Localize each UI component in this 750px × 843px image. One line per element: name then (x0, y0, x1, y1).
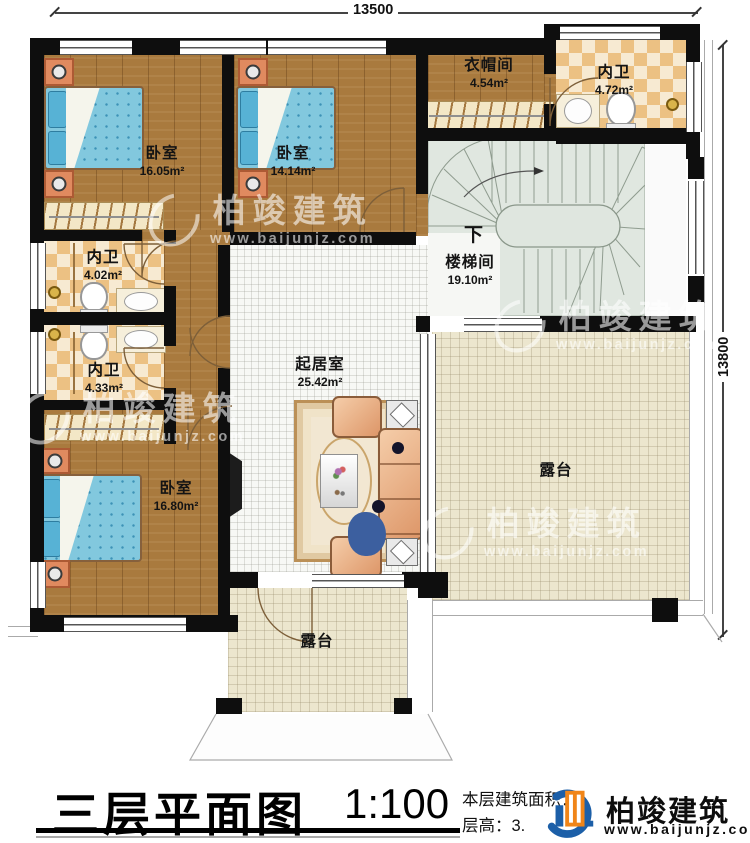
shower-partition (73, 243, 75, 307)
towel-ring (666, 98, 679, 111)
nightstand (44, 58, 74, 86)
title-underline (36, 828, 460, 833)
wall-segment (540, 316, 696, 332)
title-underline (36, 836, 460, 838)
stair-direction-label: 下 (464, 220, 483, 247)
towel-ring (48, 328, 61, 341)
wall-segment (164, 388, 176, 444)
floor-plan-page: 卧室 16.05m² 卧室 14.14m² 衣帽间 4.54m² 内卫 4.72… (0, 0, 750, 843)
room-name: 楼梯间 (445, 254, 495, 273)
room-name: 露台 (300, 633, 333, 652)
company-logo-url: www.baijunjz.com (604, 821, 750, 837)
window (64, 617, 186, 632)
person-figure (348, 512, 386, 556)
sink-bath-mid1 (116, 288, 166, 315)
nightstand (44, 170, 74, 198)
bed-sheet (66, 88, 122, 168)
wall-segment (416, 316, 430, 332)
top-dimension-label: 13500 (348, 2, 398, 18)
wall-segment (544, 24, 556, 74)
wall-segment (218, 368, 230, 444)
wall-segment (30, 312, 176, 325)
bed-bedroom1 (44, 86, 144, 170)
room-label-cloakroom: 衣帽间 4.54m² (464, 57, 514, 90)
right-dimension-label: 13800 (716, 332, 732, 382)
room-label-stairwell: 楼梯间 19.10m² (445, 254, 495, 287)
bay-area (645, 145, 686, 316)
room-area: 4.02m² (84, 268, 122, 282)
room-label-bath-mid2: 内卫 4.33m² (85, 362, 123, 395)
person-head (392, 442, 404, 454)
coffee-table (320, 454, 358, 508)
wall-segment (416, 141, 428, 194)
exterior-sill (704, 40, 713, 614)
room-area: 16.80m² (154, 499, 199, 513)
towel-ring (48, 286, 61, 299)
wall-segment (688, 276, 704, 302)
wall-segment (228, 572, 258, 588)
room-label-living: 起居室 25.42m² (295, 356, 345, 389)
window (268, 40, 386, 55)
scale-label: 1:100 (344, 780, 449, 828)
side-table (386, 538, 418, 566)
room-area: 16.05m² (140, 164, 185, 178)
wall-segment (688, 157, 704, 179)
nightstand (238, 170, 268, 198)
wall-segment (164, 230, 176, 244)
closet-bedroom3 (44, 414, 164, 441)
toilet-bath-mid2 (80, 330, 108, 360)
wall-segment (30, 400, 176, 410)
window (30, 243, 46, 309)
wardrobe-cloakroom (424, 101, 554, 129)
window (688, 181, 704, 274)
window (60, 40, 132, 55)
room-name: 卧室 (154, 480, 199, 499)
sink-bath-top (556, 94, 600, 128)
terrace-parapet (407, 600, 433, 712)
bed-pillow (240, 131, 259, 165)
tv (228, 452, 242, 518)
stairwell-drawing (428, 137, 645, 316)
room-name: 卧室 (271, 145, 316, 164)
room-label-terrace-right: 露台 (539, 462, 572, 481)
room-name: 内卫 (595, 64, 633, 83)
bed-pillow (240, 91, 259, 128)
bed-pillow (42, 479, 61, 518)
room-label-bath-mid1: 内卫 4.02m² (84, 249, 122, 282)
bed-pillow (42, 521, 61, 557)
wall-segment (230, 232, 416, 245)
wall-segment (222, 38, 234, 232)
window (560, 26, 660, 40)
room-name: 内卫 (85, 362, 123, 381)
bed-pillow (48, 131, 67, 165)
toilet-bath-top (606, 92, 636, 126)
sink-bath-mid2 (116, 326, 166, 353)
bed-sheet (60, 476, 116, 560)
room-name: 衣帽间 (464, 57, 514, 76)
room-label-terrace-bottom: 露台 (300, 633, 333, 652)
room-label-bedroom3: 卧室 16.80m² (154, 480, 199, 513)
room-name: 卧室 (140, 145, 185, 164)
room-area: 4.33m² (85, 381, 123, 395)
window (30, 332, 46, 394)
room-area: 25.42m² (295, 375, 345, 389)
wall-segment (418, 572, 448, 598)
floor-height-info: 层高：3. (462, 812, 525, 836)
window (30, 562, 46, 608)
nightstand (40, 448, 70, 474)
room-label-bath-top: 内卫 4.72m² (595, 64, 633, 97)
nightstand (238, 58, 268, 86)
door-gap-floor (416, 191, 428, 236)
wall-segment (556, 128, 700, 144)
floor-area-info: 本层建筑面积： (462, 786, 578, 810)
wall-segment (218, 444, 230, 632)
room-area: 19.10m² (445, 273, 495, 287)
wall-segment (218, 245, 230, 317)
toilet-bath-mid1 (80, 282, 108, 312)
room-label-bedroom1: 卧室 16.05m² (140, 145, 185, 178)
room-name: 起居室 (295, 356, 345, 375)
bed-pillow (48, 91, 67, 128)
wall-segment (416, 128, 556, 141)
wall-segment (30, 230, 142, 241)
wall-segment (652, 598, 678, 622)
person-head (372, 500, 385, 513)
room-area: 4.54m² (464, 76, 514, 90)
room-name: 露台 (539, 462, 572, 481)
side-table (386, 400, 418, 430)
window (464, 318, 542, 332)
bed-bedroom3 (38, 474, 142, 562)
armchair-top (332, 396, 382, 438)
terrace-parapet (689, 332, 705, 614)
wall-segment (416, 38, 428, 141)
room-label-bedroom2: 卧室 14.14m² (271, 145, 316, 178)
room-area: 4.72m² (595, 83, 633, 97)
wall-segment (394, 698, 412, 718)
closet-bedroom1 (44, 202, 164, 230)
room-area: 14.14m² (271, 164, 316, 178)
window (686, 62, 702, 132)
room-name: 内卫 (84, 249, 122, 268)
window (420, 334, 436, 572)
shower-partition (73, 332, 75, 394)
wall-segment (164, 286, 176, 346)
door-gap-floor (544, 74, 556, 104)
wall-segment (544, 104, 556, 128)
window (180, 40, 266, 55)
window (312, 574, 404, 588)
wall-segment (216, 698, 242, 720)
